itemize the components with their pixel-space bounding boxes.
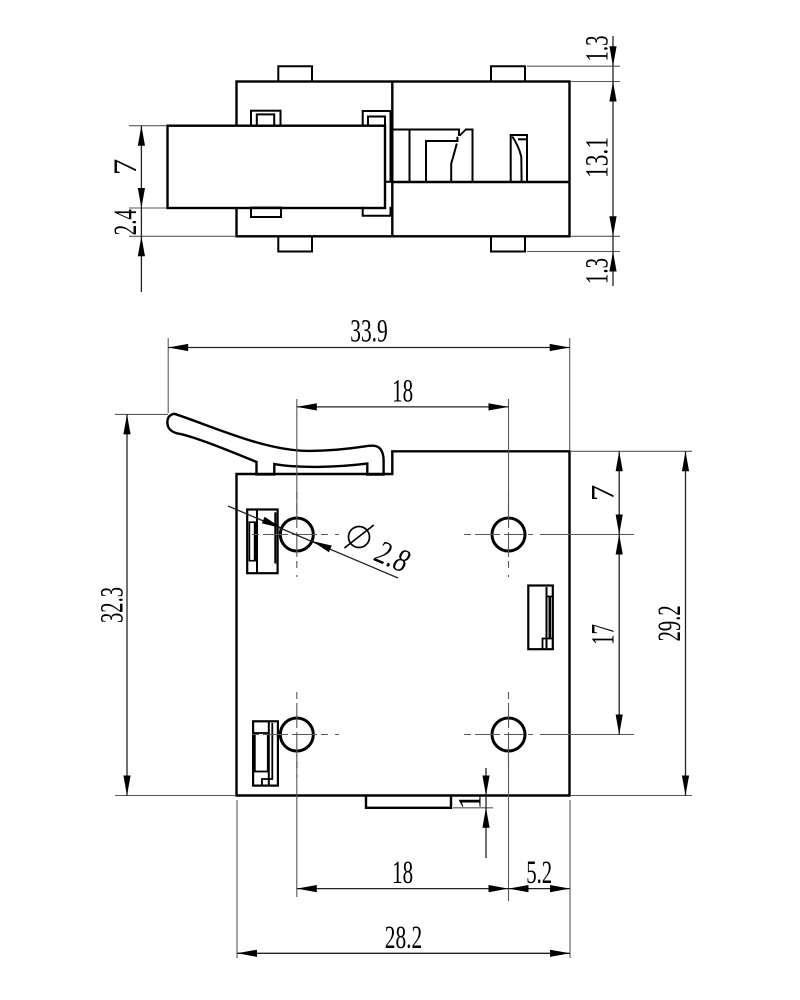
svg-text:29.2: 29.2 [652, 605, 688, 641]
svg-text:28.2: 28.2 [385, 920, 423, 956]
svg-text:18: 18 [392, 855, 413, 891]
svg-text:33.9: 33.9 [350, 314, 388, 350]
svg-text:2.8: 2.8 [370, 534, 415, 580]
svg-text:7: 7 [586, 485, 622, 502]
svg-text:2.4: 2.4 [108, 209, 144, 235]
svg-text:1.3: 1.3 [580, 36, 616, 62]
svg-text:17: 17 [586, 624, 622, 645]
svg-text:7: 7 [108, 159, 144, 176]
svg-text:32.3: 32.3 [94, 587, 130, 623]
svg-text:1: 1 [453, 793, 489, 810]
svg-text:18: 18 [392, 374, 413, 410]
svg-text:13.1: 13.1 [580, 137, 616, 178]
svg-text:1.3: 1.3 [580, 258, 616, 284]
svg-text:5.2: 5.2 [526, 855, 552, 891]
